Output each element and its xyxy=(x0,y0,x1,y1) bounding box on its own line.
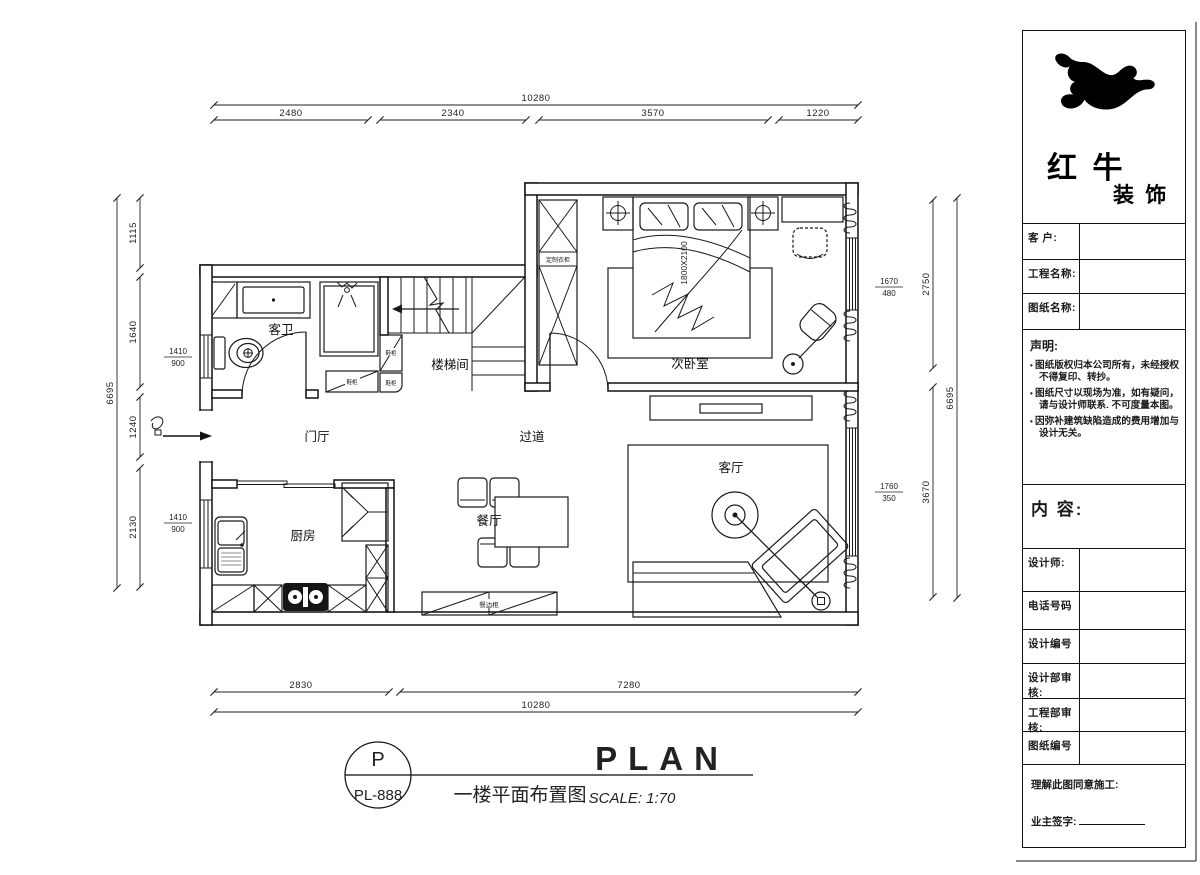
kitchen-sink xyxy=(215,517,247,575)
statement-item: 图纸尺寸以现场为准，如有疑问，请与设计师联系. 不可度量本图。 xyxy=(1030,388,1180,413)
signature-line xyxy=(1079,814,1145,825)
drawing-title-cn: 一楼平面布置图 xyxy=(453,784,586,806)
staircase xyxy=(388,277,525,391)
field-label-client: 客 户: xyxy=(1023,224,1080,259)
corner-shelf xyxy=(212,282,237,318)
field-value-design-no xyxy=(1080,630,1185,663)
dim-label: 6695 xyxy=(945,386,956,409)
toilet xyxy=(214,337,263,369)
field-value-design-review xyxy=(1080,664,1185,698)
field-label-design-no: 设计编号 xyxy=(1023,630,1080,663)
shower-area xyxy=(320,282,378,356)
window-size-num: 1410 xyxy=(169,513,187,522)
shoe-cabinets: 鞋柜 鞋柜 鞋柜 xyxy=(326,335,402,392)
field-value-drawing xyxy=(1080,294,1185,329)
sofa xyxy=(633,562,781,617)
field-label-designer: 设计师: xyxy=(1023,549,1080,591)
tv xyxy=(700,404,762,413)
field-row-designer: 设计师: xyxy=(1023,549,1185,592)
dim-label: 2480 xyxy=(279,108,302,119)
dim-label: 10280 xyxy=(522,700,551,711)
shoe-cabinet-label: 鞋柜 xyxy=(385,379,397,387)
field-value-client xyxy=(1080,224,1185,259)
drawing-title-en: PLAN xyxy=(595,740,729,777)
signature-label: 业主签字: xyxy=(1031,816,1077,828)
room-label-corridor: 过道 xyxy=(519,430,545,444)
dim-label: 10280 xyxy=(522,93,551,104)
dim-label: 1640 xyxy=(128,320,139,343)
nightstand-left xyxy=(603,197,633,230)
statement-section: 声明: 图纸版权归本公司所有，未经授权不得复印、转抄。 图纸尺寸以现场为准，如有… xyxy=(1023,330,1185,485)
room-label-dining: 餐厅 xyxy=(476,513,501,528)
dim-label: 1240 xyxy=(128,415,139,438)
wardrobe-label: 定制衣柜 xyxy=(546,256,570,264)
field-row-client: 客 户: xyxy=(1023,224,1185,260)
floorplan-svg: 鞋柜 鞋柜 鞋柜 定制衣柜 xyxy=(0,0,1200,870)
sideboard-label: 餐边柜 xyxy=(479,600,499,609)
bedroom-door xyxy=(550,333,608,391)
window-size-den: 480 xyxy=(882,289,896,298)
title-block: 红 牛 装 饰 客 户: 工程名称: 图纸名称: 声明: 图纸版权归本公司所有，… xyxy=(1022,30,1186,848)
dining-set xyxy=(458,478,568,567)
dressing-table xyxy=(782,197,843,259)
dining-table xyxy=(495,497,568,547)
dimensions-top: 10280 2480 2340 3570 1220 xyxy=(214,93,858,120)
dim-label: 3670 xyxy=(921,480,932,503)
dim-label: 6695 xyxy=(105,381,116,404)
window-size-num: 1670 xyxy=(880,277,898,286)
floor-lamp-icon xyxy=(812,592,830,610)
drawing-title: P PL-888 一楼平面布置图 PLAN SCALE: 1:70 xyxy=(345,740,753,808)
dim-label: 1220 xyxy=(806,108,829,119)
room-label-bath: 客卫 xyxy=(268,322,293,337)
vanity-sink xyxy=(237,282,310,318)
wardrobe: 定制衣柜 xyxy=(539,200,577,365)
field-row-drawing: 图纸名称: xyxy=(1023,294,1185,330)
drawing-scale: SCALE: 1:70 xyxy=(589,790,676,807)
approval-line: 理解此图同意施工: xyxy=(1031,777,1179,792)
dimensions-left: 6695 1115 1640 1240 2130 xyxy=(105,198,140,588)
stove-icon xyxy=(283,583,328,611)
content-label: 内 容: xyxy=(1023,485,1185,549)
dim-label: 2750 xyxy=(921,272,932,295)
room-label-living: 客厅 xyxy=(718,460,743,475)
field-label-drawing-no: 图纸编号 xyxy=(1023,732,1080,764)
dim-label: 2130 xyxy=(128,515,139,538)
window-size-den: 350 xyxy=(882,494,896,503)
tall-cabinet xyxy=(366,545,388,612)
dimensions-bottom: 2830 7280 10280 xyxy=(214,680,858,712)
dim-label: 1115 xyxy=(128,222,139,244)
dimensions-right: 2750 3670 6695 xyxy=(921,198,957,598)
window-size-den: 900 xyxy=(171,359,185,368)
field-row-phone: 电话号码 xyxy=(1023,592,1185,630)
field-row-design-no: 设计编号 xyxy=(1023,630,1185,664)
bubble-letter: P xyxy=(371,749,384,771)
stair-direction-arrow-icon xyxy=(392,305,459,314)
field-value-drawing-no xyxy=(1080,732,1185,764)
stair-break-line xyxy=(424,277,449,333)
field-row-design-review: 设计部审核: xyxy=(1023,664,1185,699)
field-label-drawing: 图纸名称: xyxy=(1023,294,1080,329)
bull-logo-icon xyxy=(1045,45,1165,133)
room-label-foyer: 门厅 xyxy=(304,429,329,444)
nightstand-right xyxy=(748,197,778,230)
lamp-icon xyxy=(751,201,775,225)
field-value-project xyxy=(1080,260,1185,293)
drawing-sheet: 鞋柜 鞋柜 鞋柜 定制衣柜 xyxy=(0,0,1200,870)
field-label-design-review: 设计部审核: xyxy=(1023,664,1080,698)
statement-item: 图纸版权归本公司所有，未经授权不得复印、转抄。 xyxy=(1030,360,1180,385)
armchair xyxy=(783,300,840,374)
field-value-designer xyxy=(1080,549,1185,591)
dim-label: 2340 xyxy=(441,108,464,119)
company-logo-area: 红 牛 装 饰 xyxy=(1023,31,1185,224)
field-label-phone: 电话号码 xyxy=(1023,592,1080,629)
field-row-drawing-no: 图纸编号 xyxy=(1023,732,1185,765)
shoe-cabinet-label: 鞋柜 xyxy=(346,378,358,386)
dining-chair xyxy=(458,478,487,507)
approval-section: 理解此图同意施工: 业主签字: xyxy=(1023,765,1185,847)
field-label-project: 工程名称: xyxy=(1023,260,1080,293)
bed-size-label: 1800X2100 xyxy=(679,241,689,285)
corner-cabinet xyxy=(342,483,388,541)
room-label-stair: 楼梯间 xyxy=(431,357,469,372)
room-label-kitchen: 厨房 xyxy=(290,528,315,543)
room-label-bedroom: 次卧室 xyxy=(671,356,709,371)
statement-title: 声明: xyxy=(1030,337,1180,354)
bedroom-furniture: 1800X2100 xyxy=(603,197,843,374)
field-value-phone xyxy=(1080,592,1185,629)
entry-door xyxy=(151,410,214,462)
statement-item: 因弥补建筑缺陷造成的费用增加与设计无关。 xyxy=(1030,416,1180,441)
dim-label: 3570 xyxy=(641,108,664,119)
dim-label: 7280 xyxy=(617,680,640,691)
chaise-lounge xyxy=(751,508,850,604)
field-row-project: 工程名称: xyxy=(1023,260,1185,294)
window-size-den: 900 xyxy=(171,525,185,534)
kitchen-furniture xyxy=(212,481,388,612)
lamp-icon xyxy=(606,201,630,225)
field-row-eng-review: 工程部审核: xyxy=(1023,699,1185,732)
window-size-num: 1760 xyxy=(880,482,898,491)
shoe-cabinet-label: 鞋柜 xyxy=(385,349,397,357)
brand-name-bottom: 装 饰 xyxy=(1113,179,1169,209)
sliding-door xyxy=(237,481,335,488)
field-label-eng-review: 工程部审核: xyxy=(1023,699,1080,731)
window-size-num: 1410 xyxy=(169,347,187,356)
field-value-eng-review xyxy=(1080,699,1185,731)
tv-cabinet xyxy=(650,396,812,420)
dim-label: 2830 xyxy=(289,680,312,691)
bubble-code: PL-888 xyxy=(354,787,402,804)
